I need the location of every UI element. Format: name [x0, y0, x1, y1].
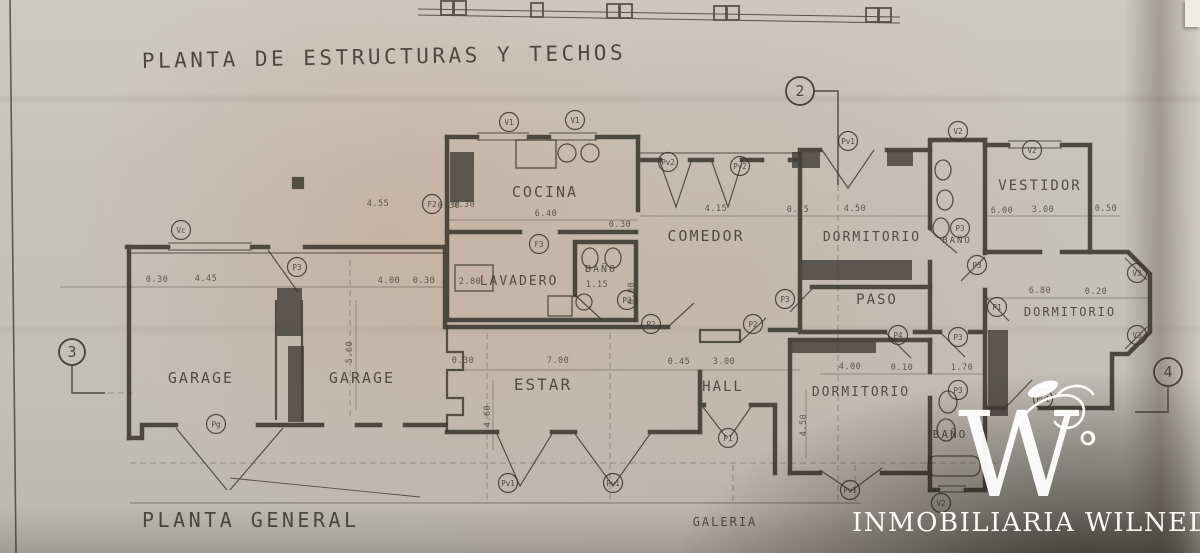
- section-marker: 2: [786, 77, 814, 105]
- opening-marker: Pv1: [499, 474, 518, 493]
- opening-marker-label: P1: [723, 434, 732, 443]
- section-marker: 4: [1154, 358, 1182, 386]
- dimension-label: 6.40: [535, 209, 557, 219]
- opening-marker: V2: [949, 122, 968, 141]
- room-label: VESTIDOR: [998, 178, 1081, 194]
- door-swings: [176, 150, 1032, 497]
- opening-marker-label: P4: [893, 331, 903, 340]
- opening-marker-label: P2: [748, 320, 757, 329]
- opening-marker-label: Pv1: [1036, 395, 1050, 404]
- dimension-label: 1.70: [951, 363, 973, 373]
- opening-marker-label: P3: [953, 333, 962, 342]
- dimension-label: 0.50: [1095, 204, 1117, 214]
- dimension-label: 4.50: [844, 204, 866, 214]
- opening-marker: V2: [1023, 141, 1042, 160]
- opening-marker-label: V3: [1132, 331, 1141, 340]
- room-label: DORMITORIO: [1024, 305, 1116, 319]
- opening-marker: P3: [949, 381, 968, 400]
- opening-marker: V3: [1128, 264, 1147, 283]
- opening-marker: P3: [288, 258, 307, 277]
- opening-marker-label: Pv2: [733, 162, 747, 171]
- opening-marker-label: Pv2: [661, 158, 675, 167]
- dimension-label: 3.00: [1032, 205, 1054, 215]
- opening-marker-label: V1: [504, 118, 513, 127]
- room-label: COCINA: [512, 183, 578, 201]
- room-label: HALL: [702, 379, 744, 395]
- sheet-border: [10, 0, 16, 553]
- opening-marker-label: V3: [1132, 269, 1141, 278]
- room-label: DORMITORIO: [812, 385, 910, 400]
- room-label: DORMITORIO: [823, 230, 921, 245]
- dimension-label: 4.15: [705, 204, 727, 214]
- blueprint-photo: COCINALAVADEROBAÑOCOMEDORDORMITORIOBAÑOV…: [0, 0, 1200, 553]
- opening-marker-label: P3: [780, 295, 789, 304]
- dimension-label: 2.80: [459, 277, 481, 287]
- opening-marker-label: P3: [972, 261, 981, 270]
- opening-marker: Pv2: [659, 153, 678, 172]
- opening-marker: P2: [642, 315, 661, 334]
- room-label: GARAGE: [168, 369, 234, 387]
- section-marker-label: 2: [795, 82, 804, 100]
- opening-marker-label: P2: [646, 320, 655, 329]
- opening-marker: Pv1: [841, 481, 860, 500]
- opening-marker-label: Pv1: [841, 137, 855, 146]
- opening-marker-label: V2: [953, 127, 962, 136]
- room-label: ESTAR: [514, 375, 572, 394]
- room-label: BAÑO: [933, 428, 968, 441]
- section-marker-label: 4: [1163, 363, 1172, 381]
- dimension-label: 0.30: [146, 275, 168, 285]
- opening-marker-label: P3: [955, 224, 964, 233]
- opening-marker: V1: [566, 111, 585, 130]
- opening-marker: P1: [988, 298, 1007, 317]
- opening-marker-label: P3: [292, 263, 301, 272]
- dimension-label: 0.15: [787, 205, 809, 215]
- opening-marker-label: P1: [992, 303, 1001, 312]
- opening-marker-label: V2: [936, 499, 945, 508]
- opening-marker: V1: [500, 113, 519, 132]
- floor-plan-drawing: COCINALAVADEROBAÑOCOMEDORDORMITORIOBAÑOV…: [0, 0, 1200, 553]
- room-label: COMEDOR: [667, 227, 744, 245]
- section-marker: 3: [59, 339, 85, 365]
- dimension-label: 5.60: [345, 341, 355, 363]
- dimension-label: 0.20: [1085, 287, 1107, 297]
- dimension-label: 1.15: [586, 280, 608, 290]
- opening-marker: P3: [968, 256, 987, 275]
- dimension-label: 4.00: [839, 362, 861, 372]
- dimension-label: 4.55: [367, 199, 389, 209]
- opening-marker: V3: [1128, 326, 1147, 345]
- dimension-label: 0.30: [413, 276, 435, 286]
- dimension-label: 6.80: [1029, 286, 1051, 296]
- dimension-label: 0.30: [609, 220, 631, 230]
- opening-marker-label: Pv1: [606, 479, 620, 488]
- top-footing-strip: [418, 1, 900, 23]
- opening-marker-label: Vc: [176, 226, 185, 235]
- room-label: GARAGE: [329, 369, 395, 387]
- opening-marker: Pv1: [1034, 390, 1053, 409]
- dimension-label: 7.00: [547, 356, 569, 366]
- dimension-label: 4.60: [483, 405, 493, 427]
- opening-marker-label: F2: [427, 200, 436, 209]
- dimension-label: 3.00: [713, 357, 735, 367]
- dimension-label: 4.50: [799, 414, 809, 436]
- opening-marker-label: V2: [1027, 146, 1036, 155]
- room-label: GALERIA: [693, 515, 758, 529]
- opening-marker: Vc: [172, 221, 191, 240]
- section-marker-label: 3: [67, 343, 76, 361]
- plan-title: PLANTA GENERAL: [142, 508, 360, 532]
- main-title: PLANTA DE ESTRUCTURAS Y TECHOS: [142, 41, 627, 73]
- opening-markers: V1V1F2F3Pv2Pv2Pv1V2V2P3P3P1V3V3P3P2P2P3P…: [172, 111, 1147, 513]
- dimension-label: 4.00: [378, 276, 400, 286]
- room-label: LAVADERO: [480, 274, 559, 289]
- opening-marker: P3: [949, 328, 968, 347]
- opening-marker: P3: [951, 219, 970, 238]
- opening-marker-label: P3: [953, 386, 962, 395]
- opening-marker-label: Pv1: [843, 486, 857, 495]
- opening-marker-label: Pv1: [501, 479, 515, 488]
- opening-marker: F3: [530, 235, 549, 254]
- opening-marker: P1: [719, 429, 738, 448]
- opening-marker-label: F3: [534, 240, 543, 249]
- opening-marker: V2: [932, 494, 951, 513]
- room-label: BAÑO: [585, 262, 617, 275]
- opening-marker-label: Pg: [211, 420, 220, 429]
- paper-edge-sliver: [1185, 0, 1200, 27]
- opening-marker: P3: [776, 290, 795, 309]
- dimension-label: 0.45: [668, 357, 690, 367]
- dimension-label: 6.00: [991, 206, 1013, 216]
- room-label: PASO: [856, 292, 898, 308]
- opening-marker: Pg: [207, 415, 226, 434]
- dimension-label: 0.30: [452, 356, 474, 366]
- opening-marker: Pv1: [604, 474, 623, 493]
- dimension-label: 0.10: [891, 363, 913, 373]
- opening-marker-label: P3: [622, 296, 631, 305]
- opening-marker-label: V1: [570, 116, 579, 125]
- dimension-label: 4.45: [195, 274, 217, 284]
- opening-marker: Pv1: [839, 132, 858, 151]
